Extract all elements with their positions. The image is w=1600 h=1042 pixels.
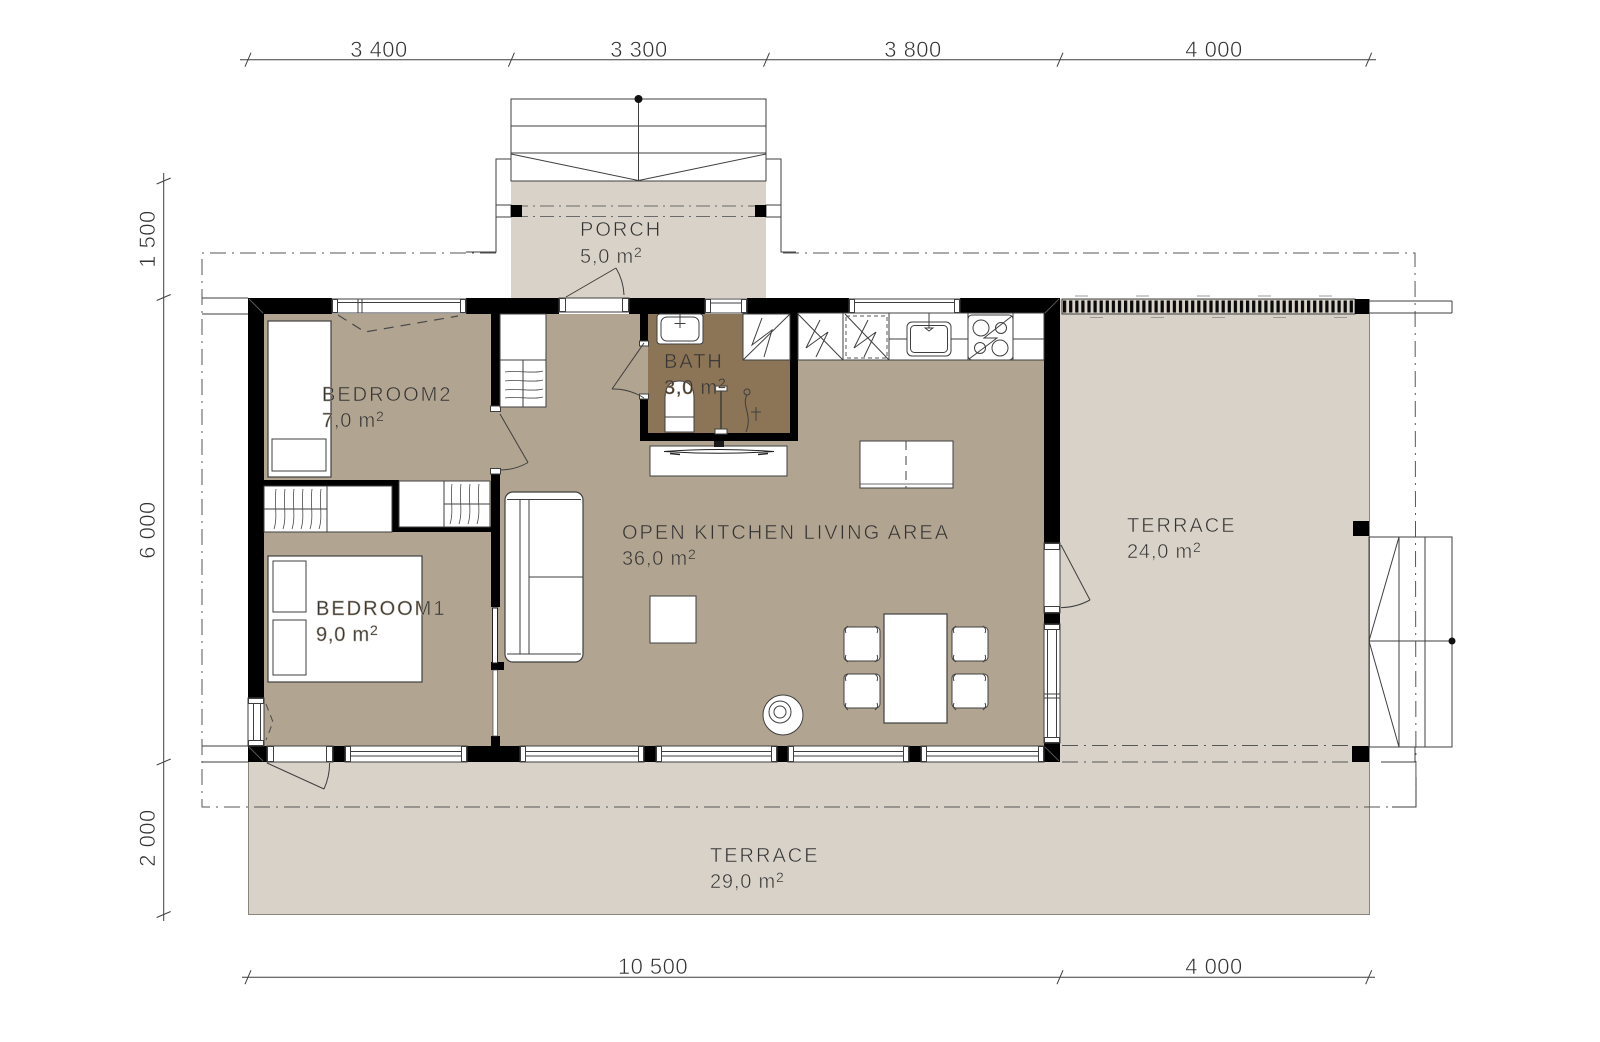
svg-text:10 500: 10 500 (618, 954, 688, 979)
svg-text:24,0 m2: 24,0 m2 (1127, 539, 1202, 563)
svg-text:BEDROOM2: BEDROOM2 (322, 384, 452, 406)
svg-text:7,0 m2: 7,0 m2 (322, 408, 385, 432)
svg-text:3 800: 3 800 (884, 37, 942, 62)
svg-text:4 000: 4 000 (1185, 954, 1243, 979)
svg-text:BEDROOM1: BEDROOM1 (316, 598, 446, 620)
svg-text:OPEN KITCHEN LIVING AREA: OPEN KITCHEN LIVING AREA (622, 522, 950, 544)
svg-text:TERRACE: TERRACE (710, 845, 820, 867)
svg-text:3 300: 3 300 (610, 37, 668, 62)
svg-text:36,0 m2: 36,0 m2 (622, 546, 697, 570)
svg-text:6 000: 6 000 (135, 501, 160, 559)
svg-text:BATH: BATH (664, 351, 724, 373)
svg-text:9,0 m2: 9,0 m2 (316, 622, 379, 646)
svg-text:3,0 m2: 3,0 m2 (664, 375, 727, 399)
svg-text:4 000: 4 000 (1185, 37, 1243, 62)
svg-text:2 000: 2 000 (135, 809, 160, 867)
svg-text:PORCH: PORCH (580, 219, 662, 241)
svg-text:29,0 m2: 29,0 m2 (710, 869, 785, 893)
svg-text:1 500: 1 500 (135, 210, 160, 268)
svg-text:5,0 m2: 5,0 m2 (580, 244, 643, 268)
svg-text:3 400: 3 400 (350, 37, 408, 62)
svg-text:TERRACE: TERRACE (1127, 515, 1237, 537)
